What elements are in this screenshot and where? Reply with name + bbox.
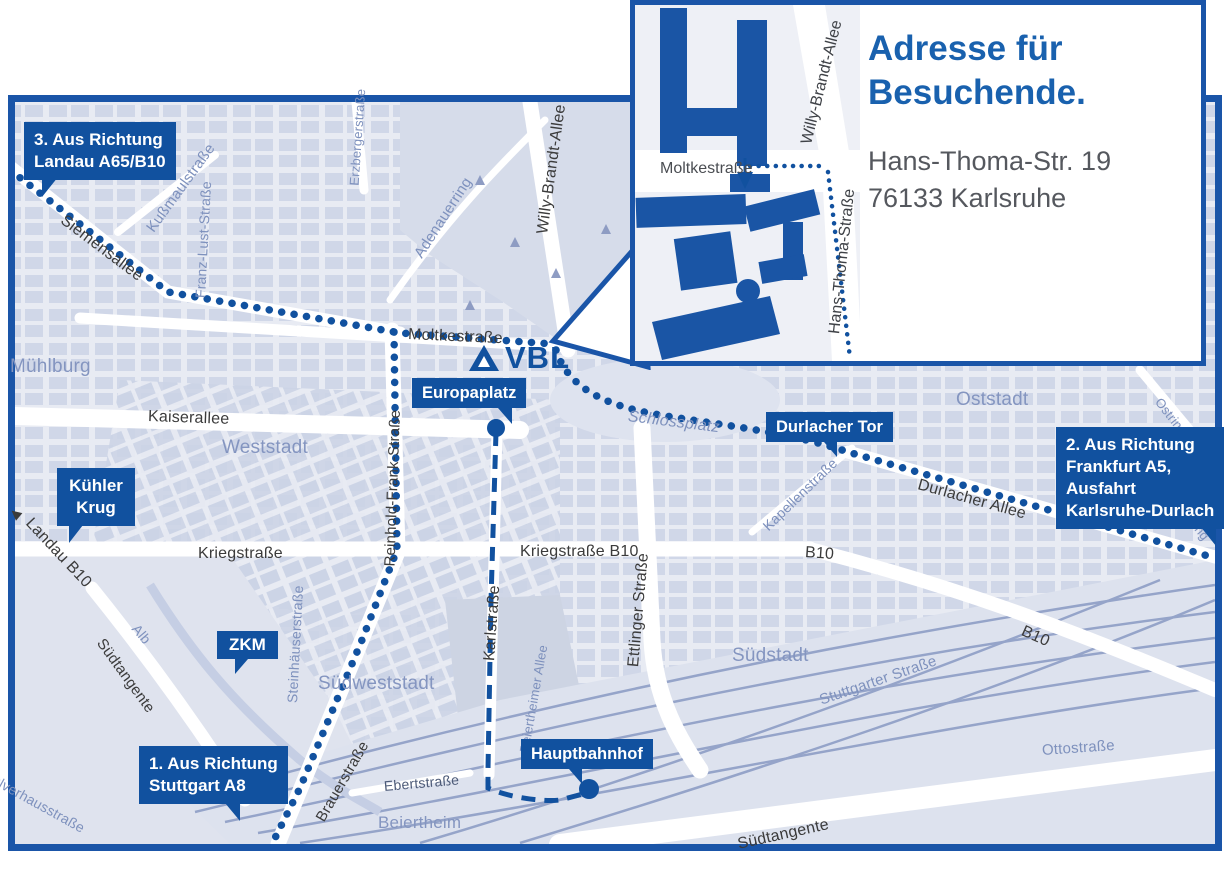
callout-tail — [235, 659, 248, 674]
callout-stuttgart: 1. Aus Richtung Stuttgart A8 — [139, 746, 288, 804]
map-flyer: Siemensallee Kußmaulstraße Franz-Lust-St… — [0, 0, 1230, 874]
district-label-weststadt: Weststadt — [222, 437, 308, 459]
callout-tail — [69, 525, 83, 543]
street-label-kriegstrasse: Kriegstraße — [198, 545, 283, 563]
callout-frankfurt: 2. Aus Richtung Frankfurt A5, Ausfahrt K… — [1056, 427, 1224, 529]
inset-heading: Adresse für Besuchende. — [868, 27, 1086, 115]
district-label-oststadt: Oststadt — [956, 389, 1028, 411]
inset-street-label-moltkestrasse: Moltkestraße — [660, 160, 752, 178]
callout-tail — [498, 408, 512, 424]
callout-durlacher-tor: Durlacher Tor — [766, 412, 893, 442]
vbl-triangle-icon — [466, 342, 502, 374]
callout-zkm: ZKM — [217, 631, 278, 659]
callout-tail — [225, 803, 240, 821]
callout-kuehler-krug: Kühler Krug — [57, 468, 135, 526]
callout-tail — [1200, 526, 1216, 546]
callout-europaplatz: Europaplatz — [412, 378, 526, 408]
district-label-suedstadt: Südstadt — [732, 645, 809, 667]
callout-tail — [824, 442, 837, 457]
street-label-kriegstrasse-b10: Kriegstraße B10 — [520, 543, 639, 561]
district-label-muehlburg: Mühlburg — [10, 356, 91, 378]
callout-hauptbahnhof: Hauptbahnhof — [521, 739, 653, 769]
inset-address: Hans-Thoma-Str. 19 76133 Karlsruhe — [868, 143, 1111, 217]
callout-landau: 3. Aus Richtung Landau A65/B10 — [24, 122, 176, 180]
street-label-kaiserallee: Kaiserallee — [148, 408, 230, 429]
district-label-suedweststadt: Südweststadt — [318, 673, 434, 695]
callout-tail — [42, 177, 58, 197]
address-inset: Adresse für Besuchende. Hans-Thoma-Str. … — [630, 0, 1206, 366]
callout-tail — [569, 769, 582, 784]
street-label-b10-mid: B10 — [804, 544, 834, 564]
district-label-beiertheim: Beiertheim — [378, 813, 461, 833]
hauptbahnhof-marker — [579, 779, 599, 799]
